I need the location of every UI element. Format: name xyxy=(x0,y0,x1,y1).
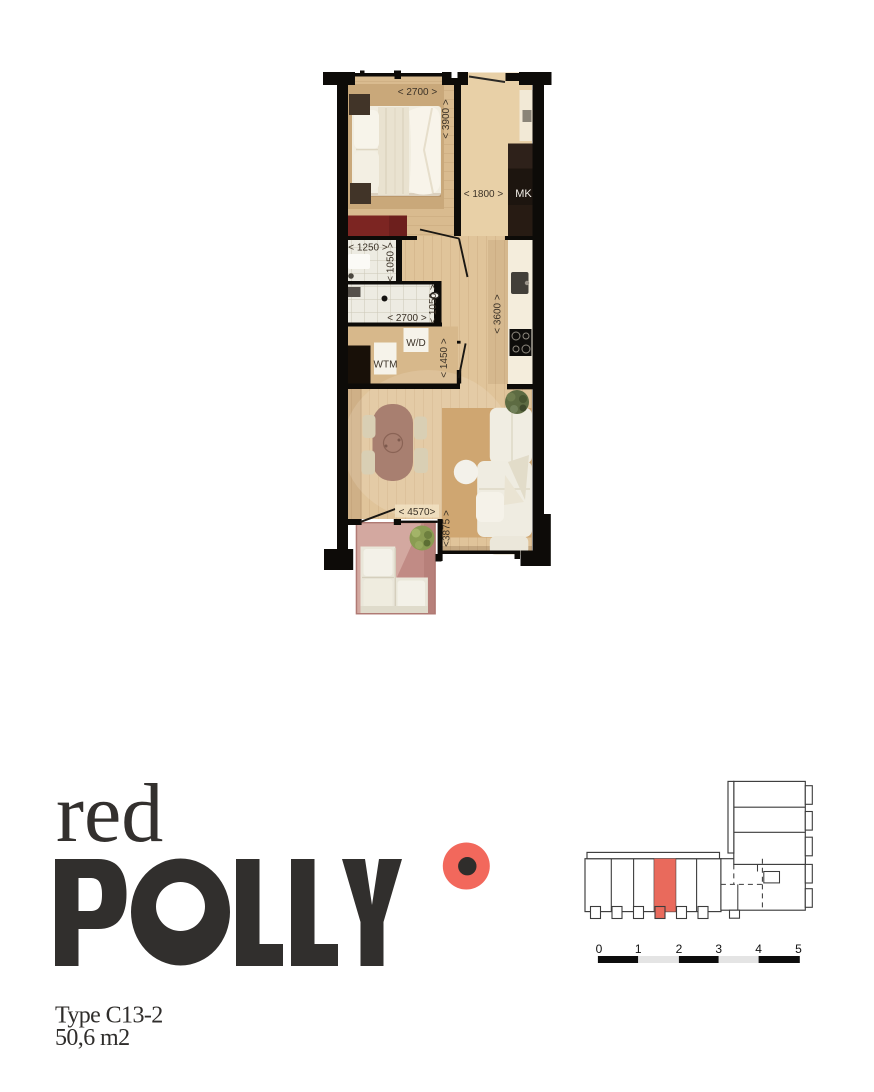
svg-text:1: 1 xyxy=(635,942,642,956)
svg-text:WTM: WTM xyxy=(374,360,398,371)
svg-text:3: 3 xyxy=(715,942,722,956)
svg-text:< 4570>: < 4570> xyxy=(399,507,436,518)
svg-text:< 2700 >: < 2700 > xyxy=(387,313,427,324)
svg-text:<3875 >: <3875 > xyxy=(442,510,453,547)
svg-text:50,6 m2: 50,6 m2 xyxy=(55,1025,129,1051)
svg-text:W/D: W/D xyxy=(406,338,425,349)
svg-text:< 3900 >: < 3900 > xyxy=(441,99,452,139)
svg-text:< 3600 >: < 3600 > xyxy=(493,294,504,334)
svg-text:5: 5 xyxy=(795,942,802,956)
svg-text:< 1800 >: < 1800 > xyxy=(464,189,504,200)
svg-text:2: 2 xyxy=(676,942,683,956)
svg-text:< 1050 >: < 1050 > xyxy=(386,242,397,282)
svg-text:0: 0 xyxy=(596,942,603,956)
svg-text:< 1250 >: < 1250 > xyxy=(348,243,388,254)
svg-text:< 1450 >: < 1450 > xyxy=(439,338,450,378)
svg-text:red: red xyxy=(56,767,163,860)
svg-text:< 2700 >: < 2700 > xyxy=(398,87,438,98)
svg-text:4: 4 xyxy=(755,942,762,956)
svg-text:< 1050 >: < 1050 > xyxy=(428,284,439,324)
svg-text:MK: MK xyxy=(515,188,532,200)
